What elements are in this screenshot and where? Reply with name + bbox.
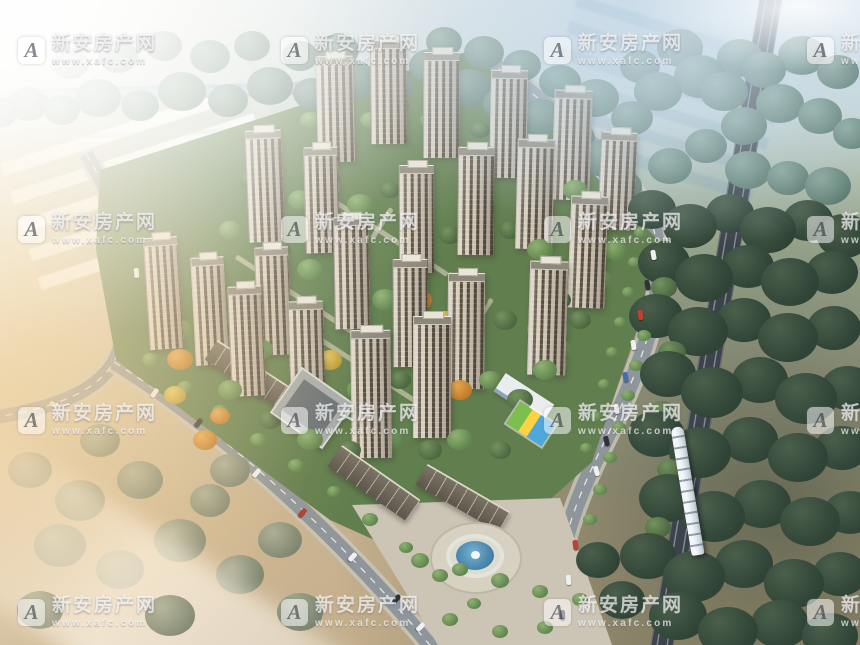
car <box>134 268 140 278</box>
tree <box>576 542 620 578</box>
watermark: A新安房产网www.xafc.com <box>18 213 157 246</box>
tree <box>721 107 767 145</box>
watermark-logo: A <box>544 407 571 434</box>
tree <box>8 452 52 488</box>
tower-penthouse <box>263 242 282 251</box>
watermark-site-url: www.xafc.com <box>841 618 860 629</box>
watermark-site-url: www.xafc.com <box>52 426 157 437</box>
tree <box>247 67 293 105</box>
watermark-site-name: 新安房产网 <box>578 596 683 615</box>
watermark-text: 新安房产网www.xafc.com <box>315 404 420 437</box>
tower-penthouse <box>254 125 274 134</box>
residential-tower <box>143 236 184 350</box>
watermark: A新安房产网www.xafc.com <box>544 213 683 246</box>
watermark: A新安房产网www.xafc.com <box>544 596 683 629</box>
tree <box>491 573 509 588</box>
fountain-jet <box>471 551 480 559</box>
watermark-text: 新安房产网www.xafc.com <box>52 213 157 246</box>
watermark: A新安房产网www.xafc.com <box>281 213 420 246</box>
tree <box>580 443 592 453</box>
watermark: A新安房产网www.xafc.com <box>544 404 683 437</box>
watermark-site-name: 新安房产网 <box>578 404 683 423</box>
tree <box>606 347 618 357</box>
tower-penthouse <box>423 311 444 319</box>
tree <box>210 454 250 487</box>
watermark-site-url: www.xafc.com <box>841 56 860 67</box>
watermark-logo: A <box>807 37 834 64</box>
watermark-site-name: 新安房产网 <box>578 34 683 53</box>
tree <box>117 461 163 499</box>
tree <box>767 161 809 195</box>
watermark-site-name: 新安房产网 <box>841 213 860 232</box>
tree <box>210 408 230 424</box>
tree <box>598 379 610 389</box>
watermark-logo: A <box>544 599 571 626</box>
watermark-site-name: 新安房产网 <box>841 404 860 423</box>
watermark-text: 新安房产网www.xafc.com <box>578 404 683 437</box>
watermark: A新安房产网www.xafc.com <box>544 34 683 67</box>
tree <box>208 84 248 117</box>
tree <box>389 371 411 389</box>
watermark-site-name: 新安房产网 <box>315 596 420 615</box>
tower-penthouse <box>458 268 479 276</box>
tree <box>75 79 121 117</box>
watermark-logo: A <box>281 216 308 243</box>
watermark: A新安房产网www.xafc.com <box>807 596 860 629</box>
watermark-site-url: www.xafc.com <box>578 235 683 246</box>
watermark-text: 新安房产网www.xafc.com <box>315 596 420 629</box>
tree <box>742 52 786 88</box>
tree <box>725 151 771 189</box>
tree <box>219 221 241 239</box>
tree <box>751 600 809 645</box>
watermark-site-name: 新安房产网 <box>52 34 157 53</box>
watermark: A新安房产网www.xafc.com <box>807 404 860 437</box>
watermark-text: 新安房产网www.xafc.com <box>578 213 683 246</box>
watermark-text: 新安房产网www.xafc.com <box>52 404 157 437</box>
watermark: A新安房产网www.xafc.com <box>281 596 420 629</box>
watermark-site-name: 新安房产网 <box>315 213 420 232</box>
watermark-logo: A <box>544 37 571 64</box>
watermark-text: 新安房产网www.xafc.com <box>315 34 420 67</box>
watermark-site-url: www.xafc.com <box>52 235 157 246</box>
watermark-logo: A <box>18 216 45 243</box>
watermark-text: 新安房产网www.xafc.com <box>578 34 683 67</box>
watermark-site-name: 新安房产网 <box>315 34 420 53</box>
watermark-site-name: 新安房产网 <box>52 596 157 615</box>
tower-penthouse <box>297 296 317 305</box>
watermark-logo: A <box>18 37 45 64</box>
watermark-site-name: 新安房产网 <box>578 213 683 232</box>
tree <box>411 553 429 568</box>
watermark-site-url: www.xafc.com <box>841 426 860 437</box>
watermark-text: 新安房产网www.xafc.com <box>578 596 683 629</box>
watermark-text: 新安房产网www.xafc.com <box>315 213 420 246</box>
watermark: A新安房产网www.xafc.com <box>281 404 420 437</box>
tree <box>164 386 186 404</box>
tree <box>258 522 302 558</box>
tree <box>470 122 490 138</box>
tree <box>648 148 692 184</box>
tree <box>761 258 819 306</box>
tower-penthouse <box>408 160 428 168</box>
tower-penthouse <box>199 252 218 261</box>
watermark-logo: A <box>281 37 308 64</box>
watermark: A新安房产网www.xafc.com <box>18 404 157 437</box>
watermark-logo: A <box>281 407 308 434</box>
tree <box>681 367 743 418</box>
tree <box>698 607 758 645</box>
tree <box>569 311 591 329</box>
tree <box>190 40 230 73</box>
tree <box>34 524 86 567</box>
tree <box>55 480 105 521</box>
residential-tower <box>245 129 285 242</box>
watermark-text: 新安房产网www.xafc.com <box>841 34 860 67</box>
car <box>566 575 572 585</box>
tower-penthouse <box>433 47 453 55</box>
watermark-site-name: 新安房产网 <box>841 596 860 615</box>
tree <box>675 254 733 302</box>
watermark-site-url: www.xafc.com <box>578 426 683 437</box>
watermark-logo: A <box>807 407 834 434</box>
watermark-text: 新安房产网www.xafc.com <box>52 34 157 67</box>
watermark: A新安房产网www.xafc.com <box>18 596 157 629</box>
tree <box>685 129 727 163</box>
watermark: A新安房产网www.xafc.com <box>807 213 860 246</box>
residential-tower <box>447 273 485 389</box>
watermark: A新安房产网www.xafc.com <box>281 34 420 67</box>
tree <box>614 317 626 327</box>
watermark-logo: A <box>281 599 308 626</box>
watermark-site-url: www.xafc.com <box>841 235 860 246</box>
watermark-site-url: www.xafc.com <box>315 618 420 629</box>
tower-penthouse <box>540 256 561 265</box>
watermark-site-url: www.xafc.com <box>52 56 157 67</box>
watermark-site-name: 新安房产网 <box>52 213 157 232</box>
tower-penthouse <box>468 142 488 150</box>
tree <box>154 519 206 562</box>
tower-penthouse <box>312 142 331 151</box>
tower-penthouse <box>360 325 382 333</box>
watermark-site-url: www.xafc.com <box>315 426 420 437</box>
tree <box>464 36 504 69</box>
watermark: A新安房产网www.xafc.com <box>807 34 860 67</box>
watermark-site-name: 新安房产网 <box>841 34 860 53</box>
watermark-logo: A <box>807 216 834 243</box>
watermark-text: 新安房产网www.xafc.com <box>841 404 860 437</box>
tree <box>489 441 511 459</box>
tower-penthouse <box>565 85 586 94</box>
tree <box>380 182 400 198</box>
watermark-site-name: 新安房产网 <box>315 404 420 423</box>
watermark-text: 新安房产网www.xafc.com <box>52 596 157 629</box>
watermark-logo: A <box>18 407 45 434</box>
watermark-site-url: www.xafc.com <box>52 618 157 629</box>
tower-penthouse <box>581 191 602 200</box>
aerial-rendering: A新安房产网www.xafc.comA新安房产网www.xafc.comA新安房… <box>0 0 860 645</box>
watermark-logo: A <box>18 599 45 626</box>
watermark-site-url: www.xafc.com <box>578 618 683 629</box>
watermark-site-name: 新安房产网 <box>52 404 157 423</box>
residential-tower <box>423 52 459 158</box>
watermark-text: 新安房产网www.xafc.com <box>841 596 860 629</box>
watermark-logo: A <box>544 216 571 243</box>
watermark-site-url: www.xafc.com <box>315 235 420 246</box>
tower-penthouse <box>611 127 632 136</box>
tower-penthouse <box>402 254 422 262</box>
residential-tower <box>457 147 494 255</box>
tower-penthouse <box>236 281 255 290</box>
tower-penthouse <box>501 65 522 73</box>
watermark-site-url: www.xafc.com <box>315 56 420 67</box>
watermark: A新安房产网www.xafc.com <box>18 34 157 67</box>
watermark-logo: A <box>807 599 834 626</box>
residential-tower <box>350 330 392 459</box>
watermark-site-url: www.xafc.com <box>578 56 683 67</box>
residential-tower <box>527 261 568 376</box>
tree <box>190 484 230 517</box>
watermark-text: 新安房产网www.xafc.com <box>841 213 860 246</box>
tree <box>622 287 634 297</box>
tower-penthouse <box>527 134 548 143</box>
